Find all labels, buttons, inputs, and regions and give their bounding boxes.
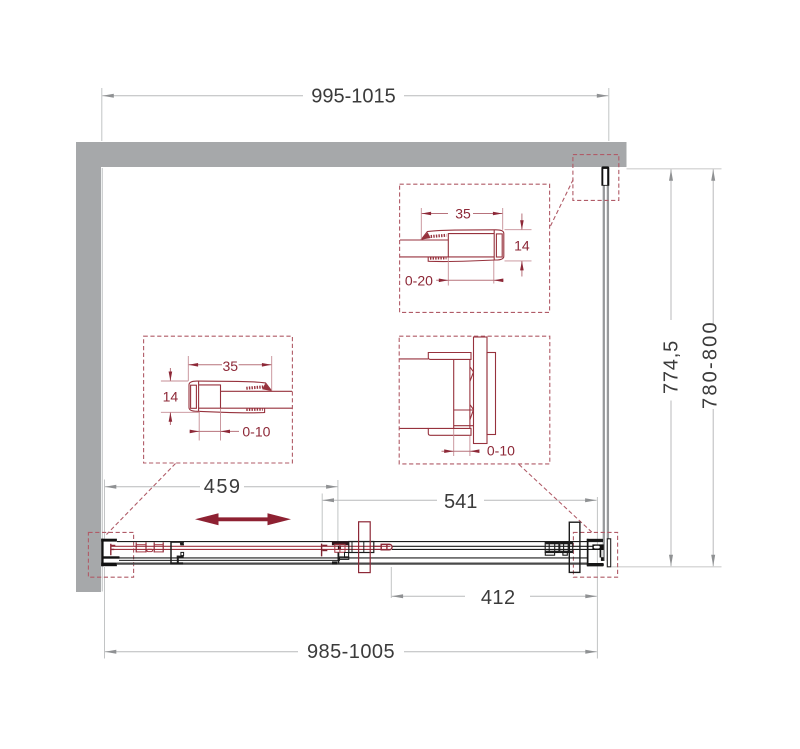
svg-text:995-1015: 995-1015 [311,86,396,108]
svg-text:14: 14 [514,237,530,253]
svg-text:0-10: 0-10 [487,442,515,458]
svg-text:985-1005: 985-1005 [307,641,395,663]
svg-text:14: 14 [163,389,179,405]
svg-text:412: 412 [481,587,516,609]
svg-text:774,5: 774,5 [660,340,682,394]
svg-text:35: 35 [455,205,471,221]
svg-text:780-800: 780-800 [699,320,721,409]
svg-text:541: 541 [444,491,477,513]
svg-text:459: 459 [204,476,242,498]
svg-text:35: 35 [223,358,239,374]
svg-text:0-20: 0-20 [405,272,433,288]
svg-text:0-10: 0-10 [242,424,270,440]
